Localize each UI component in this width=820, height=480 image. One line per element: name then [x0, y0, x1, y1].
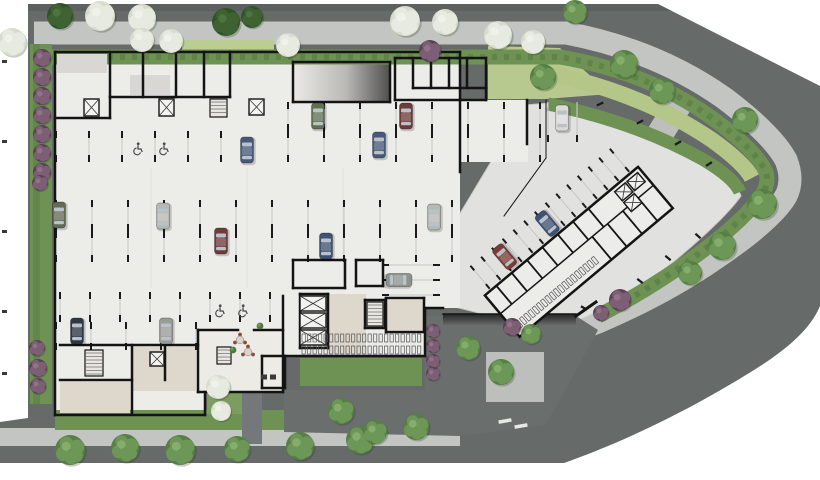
- tree-highlight: [507, 322, 512, 327]
- room-floor: [328, 294, 366, 354]
- tree-lobe: [763, 204, 775, 216]
- room-floor: [60, 382, 130, 413]
- car: [241, 137, 256, 165]
- tree-lobe: [601, 313, 607, 319]
- tree-lobe: [13, 42, 24, 53]
- stall-tick: [235, 224, 237, 231]
- car-roof: [557, 115, 567, 124]
- stall-tick: [91, 255, 93, 262]
- stall-tick: [433, 294, 440, 296]
- wheelchair-head: [163, 142, 166, 145]
- tree-lobe: [289, 45, 299, 55]
- stall-tick: [89, 315, 91, 322]
- tree-highlight: [37, 72, 42, 77]
- stall-tick: [199, 231, 201, 238]
- tree-lobe: [253, 17, 262, 26]
- tree-lobe: [621, 300, 630, 309]
- stall-tick: [91, 224, 93, 231]
- chair: [246, 345, 250, 349]
- car-windshield: [429, 210, 439, 214]
- stall-tick: [467, 155, 469, 162]
- car-rear-window: [321, 252, 331, 255]
- car-roof: [72, 328, 82, 337]
- stall-tick: [287, 102, 289, 109]
- tree-highlight: [218, 14, 226, 22]
- tree-highlight: [616, 56, 624, 64]
- property-line-tick: [2, 372, 7, 375]
- stall-tick: [503, 155, 505, 162]
- property-line-tick: [2, 230, 7, 233]
- stall-tick: [271, 200, 273, 207]
- property-line-tick: [2, 310, 7, 313]
- tree-highlight: [33, 363, 38, 368]
- stall-tick: [431, 102, 433, 109]
- stall-tick: [415, 224, 417, 231]
- stall-tick: [451, 224, 453, 231]
- tree-lobe: [222, 411, 230, 419]
- car-rear-window: [401, 122, 411, 125]
- forecourt-green-strip: [300, 358, 422, 386]
- tree-lobe: [42, 115, 49, 122]
- tree-highlight: [429, 357, 433, 361]
- tree-highlight: [429, 370, 433, 374]
- tree-highlight: [37, 148, 42, 153]
- car-roof: [216, 238, 226, 247]
- stall-tick: [359, 131, 361, 138]
- tree-highlight: [37, 53, 42, 58]
- stall-tick: [195, 322, 197, 329]
- tree-highlight: [281, 38, 288, 45]
- tree-lobe: [42, 77, 49, 84]
- tree-highlight: [33, 344, 38, 349]
- tree-lobe: [406, 21, 418, 33]
- tree-lobe: [238, 449, 248, 459]
- stall-tick: [451, 255, 453, 262]
- car-rear-window: [161, 337, 171, 340]
- stall-tick: [287, 131, 289, 138]
- tree-lobe: [433, 346, 439, 352]
- stall-tick: [209, 315, 211, 322]
- tree-lobe: [534, 42, 544, 52]
- tree-lobe: [625, 64, 636, 75]
- tree-highlight: [397, 13, 406, 22]
- car-windshield: [401, 109, 411, 113]
- stall-tick: [163, 255, 165, 262]
- stair: [85, 350, 103, 376]
- car-rear-window: [390, 275, 393, 285]
- room-floor: [130, 75, 170, 95]
- tree-highlight: [424, 45, 431, 52]
- car: [71, 318, 86, 346]
- car-roof: [394, 275, 403, 285]
- tree-highlight: [526, 35, 533, 42]
- tree-lobe: [42, 58, 49, 65]
- tree-lobe: [38, 368, 45, 375]
- car-rear-window: [158, 222, 168, 225]
- tree-highlight: [490, 27, 498, 35]
- car: [160, 318, 175, 346]
- garage-floor-east: [460, 100, 528, 162]
- stall-tick: [287, 124, 289, 131]
- tree-lobe: [181, 450, 193, 462]
- bench: [270, 375, 276, 380]
- car-windshield: [313, 109, 323, 113]
- tree-highlight: [230, 442, 238, 450]
- stall-tick: [154, 131, 156, 138]
- tree-highlight: [754, 196, 763, 205]
- room-floor: [386, 300, 424, 330]
- car-windshield: [158, 209, 168, 213]
- car-roof: [321, 243, 331, 252]
- stall-tick: [269, 315, 271, 322]
- car: [320, 233, 335, 261]
- wheelchair-head: [219, 304, 222, 307]
- stall-tick: [359, 124, 361, 131]
- stall-tick: [503, 124, 505, 131]
- tree-lobe: [512, 327, 519, 334]
- tree-lobe: [663, 91, 673, 101]
- car-windshield: [72, 324, 82, 328]
- stall-tick: [431, 155, 433, 162]
- tree-highlight: [334, 404, 342, 412]
- car-windshield: [557, 111, 567, 115]
- table: [236, 336, 244, 344]
- tree-lobe: [431, 51, 440, 60]
- tree-lobe: [126, 448, 137, 459]
- car: [384, 274, 412, 289]
- tree-highlight: [461, 341, 468, 348]
- pale-tree: [0, 28, 28, 58]
- tree-highlight: [37, 167, 42, 172]
- stall-tick: [163, 231, 165, 238]
- car: [215, 228, 230, 256]
- car-windshield: [242, 143, 252, 147]
- tree-lobe: [417, 427, 427, 437]
- table: [244, 348, 252, 356]
- stall-tick: [467, 131, 469, 138]
- stall-tick: [91, 200, 93, 207]
- tree-highlight: [117, 440, 125, 448]
- car-roof: [374, 142, 384, 151]
- stall-tick: [154, 155, 156, 162]
- ramp: [293, 62, 390, 102]
- stall-tick: [209, 292, 211, 299]
- car: [400, 103, 415, 131]
- tree-highlight: [352, 432, 360, 440]
- stall-tick: [307, 224, 309, 231]
- site-plan-svg: [0, 0, 820, 480]
- stall-tick: [431, 124, 433, 131]
- tree-highlight: [714, 238, 722, 246]
- stall-tick: [220, 155, 222, 162]
- stall-tick: [503, 102, 505, 109]
- stall-tick: [307, 200, 309, 207]
- tree-lobe: [502, 372, 512, 382]
- tree-lobe: [446, 22, 456, 32]
- tree-lobe: [42, 96, 49, 103]
- car-windshield: [321, 239, 331, 243]
- stair: [217, 347, 231, 364]
- stall-tick: [127, 200, 129, 207]
- stall-tick: [199, 255, 201, 262]
- tree-lobe: [532, 334, 540, 342]
- stall-tick: [119, 315, 121, 322]
- stall-tick: [467, 124, 469, 131]
- tree-highlight: [597, 309, 602, 314]
- tree-lobe: [544, 77, 554, 87]
- stall-tick: [88, 131, 90, 138]
- stall-tick: [59, 315, 61, 322]
- car: [312, 103, 327, 131]
- stall-tick: [467, 102, 469, 109]
- stall-tick: [187, 131, 189, 138]
- stall-tick: [451, 231, 453, 238]
- tree-highlight: [172, 442, 181, 451]
- stall-tick: [323, 155, 325, 162]
- stall-tick: [539, 124, 541, 131]
- stall-tick: [539, 155, 541, 162]
- tree-lobe: [433, 361, 439, 367]
- stall-tick: [379, 200, 381, 207]
- tree-lobe: [143, 18, 154, 29]
- tree-highlight: [292, 438, 300, 446]
- tree-highlight: [34, 382, 39, 387]
- property-line-tick: [2, 60, 7, 63]
- room-floor: [57, 54, 107, 73]
- car-roof: [161, 328, 171, 337]
- stall-tick: [382, 294, 389, 296]
- stall-tick: [149, 315, 151, 322]
- tree-lobe: [433, 331, 439, 337]
- indoor-plant: [230, 347, 237, 354]
- stall-tick: [547, 135, 549, 142]
- tree-highlight: [526, 329, 532, 335]
- indoor-plant: [257, 323, 264, 330]
- stall-tick: [415, 200, 417, 207]
- tree-highlight: [494, 365, 502, 373]
- car-rear-window: [54, 221, 64, 224]
- stall-tick: [235, 255, 237, 262]
- tree-highlight: [438, 15, 446, 23]
- stall-tick: [539, 102, 541, 109]
- stall-tick: [343, 224, 345, 231]
- tree-lobe: [40, 183, 46, 189]
- tree-lobe: [42, 134, 49, 141]
- tree-highlight: [429, 327, 433, 331]
- tree-highlight: [92, 8, 101, 17]
- stall-tick: [395, 102, 397, 109]
- stall-tick: [119, 292, 121, 299]
- car: [373, 132, 388, 160]
- stall-tick: [415, 231, 417, 238]
- tree-lobe: [101, 16, 113, 28]
- stall-tick: [287, 155, 289, 162]
- stall-tick: [90, 322, 92, 329]
- tree-highlight: [36, 179, 41, 184]
- tree-highlight: [37, 91, 42, 96]
- car-windshield: [161, 324, 171, 328]
- stall-tick: [187, 155, 189, 162]
- tree-lobe: [37, 348, 43, 354]
- bench: [261, 375, 267, 380]
- tree-lobe: [576, 12, 586, 22]
- stall-tick: [199, 200, 201, 207]
- stall-tick: [149, 292, 151, 299]
- tree-highlight: [429, 342, 433, 346]
- tree-highlight: [568, 5, 575, 12]
- stall-tick: [89, 292, 91, 299]
- tree-highlight: [4, 34, 12, 42]
- stall-tick: [235, 231, 237, 238]
- car-roof: [313, 113, 323, 122]
- stall-tick: [271, 224, 273, 231]
- stall-tick: [127, 231, 129, 238]
- tree-highlight: [164, 34, 171, 41]
- car: [53, 202, 68, 230]
- tree-lobe: [172, 41, 182, 51]
- tree-lobe: [219, 387, 229, 397]
- tree-highlight: [216, 406, 222, 412]
- car-rear-window: [557, 124, 567, 127]
- car-rear-window: [216, 247, 226, 250]
- tree-highlight: [738, 113, 746, 121]
- car-roof: [242, 147, 252, 156]
- tree-highlight: [655, 84, 663, 92]
- stall-tick: [220, 131, 222, 138]
- tree-lobe: [691, 273, 701, 283]
- tree-lobe: [61, 16, 71, 26]
- tree-lobe: [42, 153, 49, 160]
- car: [157, 203, 172, 231]
- car-rear-window: [242, 156, 252, 159]
- tree-highlight: [62, 442, 71, 451]
- tree-lobe: [469, 348, 479, 358]
- tree-lobe: [143, 40, 153, 50]
- stall-tick: [121, 131, 123, 138]
- stall-tick: [179, 292, 181, 299]
- tree-highlight: [246, 11, 253, 18]
- car-windshield: [54, 208, 64, 212]
- stall-tick: [323, 131, 325, 138]
- stall-tick: [88, 155, 90, 162]
- tree-lobe: [746, 120, 756, 130]
- tree-highlight: [614, 294, 621, 301]
- stall-tick: [271, 255, 273, 262]
- site-plan-stage: [0, 0, 820, 480]
- tree-highlight: [135, 33, 142, 40]
- stall-tick: [343, 231, 345, 238]
- stall-tick: [379, 224, 381, 231]
- car: [556, 105, 571, 133]
- tree-lobe: [376, 432, 386, 442]
- stall-tick: [271, 231, 273, 238]
- car-roof: [401, 113, 411, 122]
- plant-highlight: [230, 347, 233, 350]
- stall-tick: [379, 231, 381, 238]
- stall-tick: [395, 124, 397, 131]
- tree-highlight: [211, 380, 218, 387]
- stall-tick: [431, 131, 433, 138]
- tree-highlight: [37, 110, 42, 115]
- stall-tick: [125, 322, 127, 329]
- tree-highlight: [37, 129, 42, 134]
- stall-tick: [127, 224, 129, 231]
- tree-lobe: [723, 246, 734, 257]
- stall-tick: [59, 292, 61, 299]
- car-rear-window: [374, 151, 384, 154]
- stall-tick: [359, 155, 361, 162]
- car-windshield: [216, 234, 226, 238]
- stall-tick: [127, 255, 129, 262]
- chair: [238, 333, 242, 337]
- property-line-tick: [2, 140, 7, 143]
- tree-lobe: [342, 411, 352, 421]
- wheelchair-head: [242, 304, 245, 307]
- stall-tick: [415, 255, 417, 262]
- tree-highlight: [683, 266, 690, 273]
- tree-lobe: [301, 446, 312, 457]
- car-rear-window: [72, 337, 82, 340]
- stall-tick: [433, 279, 440, 281]
- car-windshield: [403, 275, 407, 285]
- stall-tick: [179, 315, 181, 322]
- tree-lobe: [433, 374, 439, 380]
- wheelchair-head: [137, 142, 140, 145]
- stall-tick: [539, 131, 541, 138]
- stall-tick: [343, 200, 345, 207]
- tree-lobe: [227, 22, 238, 33]
- stall-tick: [307, 231, 309, 238]
- tree-highlight: [368, 425, 375, 432]
- stall-tick: [121, 155, 123, 162]
- tree-highlight: [409, 420, 417, 428]
- tree-lobe: [499, 35, 510, 46]
- stall-tick: [451, 200, 453, 207]
- car-roof: [429, 214, 439, 223]
- car-roof: [158, 213, 168, 222]
- stall-tick: [199, 224, 201, 231]
- stall-tick: [239, 292, 241, 299]
- car-rear-window: [313, 122, 323, 125]
- stall-tick: [503, 131, 505, 138]
- stall-tick: [235, 200, 237, 207]
- stall-tick: [91, 231, 93, 238]
- stall-tick: [433, 264, 440, 266]
- stall-tick: [576, 135, 578, 142]
- stall-tick: [269, 292, 271, 299]
- tree-lobe: [71, 450, 83, 462]
- stall-tick: [395, 155, 397, 162]
- car-roof: [54, 212, 64, 221]
- car-windshield: [374, 138, 384, 142]
- car: [428, 204, 443, 232]
- plant-highlight: [257, 323, 260, 326]
- tree-lobe: [38, 386, 44, 392]
- tree-highlight: [536, 70, 544, 78]
- tree-highlight: [53, 9, 61, 17]
- car-rear-window: [429, 223, 439, 226]
- tree-highlight: [134, 10, 142, 18]
- stall-tick: [395, 131, 397, 138]
